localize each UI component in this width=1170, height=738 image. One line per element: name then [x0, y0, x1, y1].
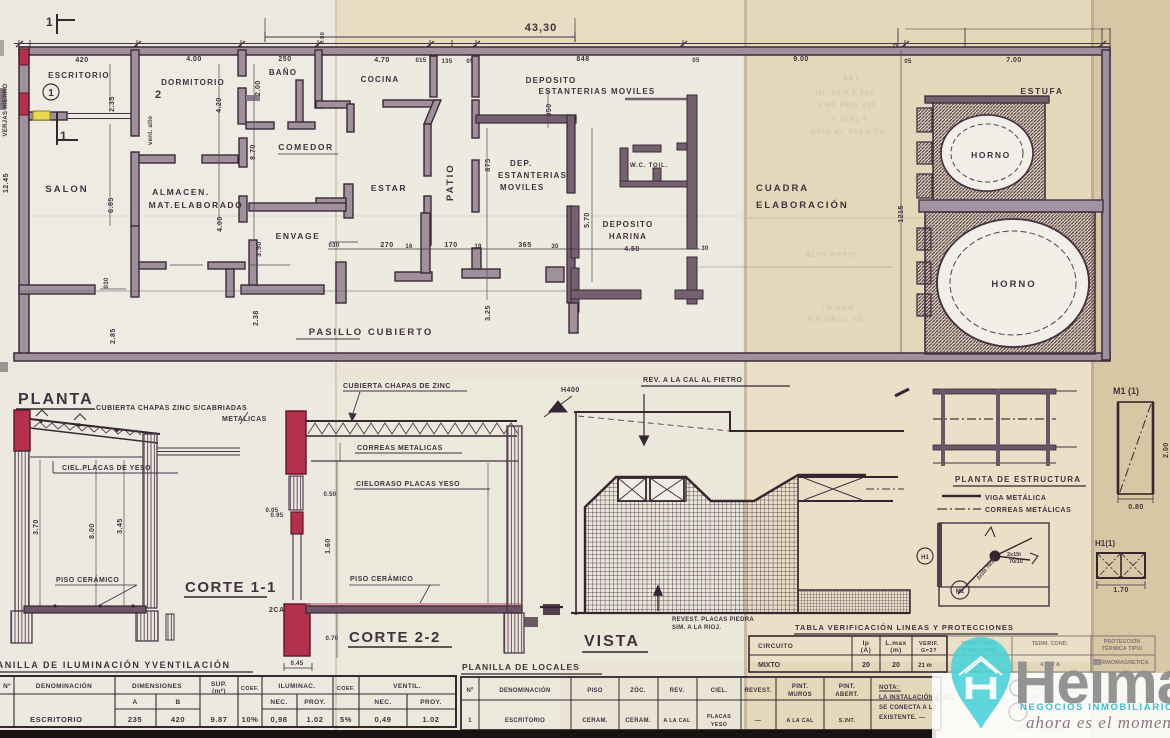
svg-text:REV. A LA CAL AL FIETRO: REV. A LA CAL AL FIETRO — [643, 377, 742, 384]
svg-text:HARINA: HARINA — [609, 232, 647, 241]
svg-text:TERM. COND.: TERM. COND. — [1032, 641, 1069, 647]
svg-text:SALON: SALON — [45, 184, 88, 195]
svg-text:CIRCUITO: CIRCUITO — [758, 643, 793, 650]
svg-text:0,49: 0,49 — [375, 715, 392, 724]
svg-text:8.00: 8.00 — [89, 523, 96, 539]
svg-text:420: 420 — [171, 715, 185, 724]
svg-text:DENOMINACIÓN: DENOMINACIÓN — [36, 681, 92, 690]
svg-text:ENVAGE: ENVAGE — [276, 231, 321, 241]
svg-text:CIELORASO PLACAS YESO: CIELORASO PLACAS YESO — [356, 481, 460, 488]
svg-text:H1(1): H1(1) — [1095, 539, 1115, 548]
svg-text:21 m: 21 m — [918, 663, 932, 669]
svg-text:LEY: LEY — [844, 75, 861, 82]
svg-text:PLACAS: PLACAS — [707, 714, 731, 720]
svg-text:TABLA VERIFICACIÓN LINEAS Y PR: TABLA VERIFICACIÓN LINEAS Y PROTECCIONES — [795, 623, 1014, 632]
svg-text:MUROS: MUROS — [788, 692, 812, 698]
svg-text:16: 16 — [405, 244, 413, 250]
svg-text:H1: H1 — [921, 555, 929, 561]
svg-text:1: 1 — [60, 129, 67, 143]
svg-text:ALTO PRTTE: ALTO PRTTE — [805, 252, 858, 259]
svg-text:170: 170 — [444, 242, 457, 249]
svg-text:1: 1 — [48, 88, 54, 99]
svg-text:ESTANTERIAS: ESTANTERIAS — [498, 171, 567, 180]
svg-text:MI. 98 T.T 388: MI. 98 T.T 388 — [816, 90, 875, 97]
svg-text:SE CONECTA A LA: SE CONECTA A LA — [879, 705, 938, 711]
svg-text:Nº: Nº — [3, 683, 11, 690]
svg-text:19: 19 — [474, 244, 482, 250]
svg-text:VIGA METÁLICA: VIGA METÁLICA — [985, 493, 1046, 502]
svg-text:ESCRITORIO: ESCRITORIO — [505, 718, 545, 724]
svg-text:SIM. A LA RIOJ.: SIM. A LA RIOJ. — [672, 625, 721, 631]
svg-text:CIEL.: CIEL. — [711, 688, 728, 694]
svg-text:VISTA: VISTA — [584, 633, 640, 650]
svg-text:BAÑO: BAÑO — [269, 68, 297, 77]
svg-text:PASILLO CUBIERTO: PASILLO CUBIERTO — [309, 327, 434, 338]
svg-text:DEPOSITO: DEPOSITO — [526, 76, 577, 85]
svg-text:TR ANM: TR ANM — [822, 305, 855, 312]
svg-text:DENOMINACIÓN: DENOMINACIÓN — [499, 686, 550, 694]
svg-text:L.max: L.max — [885, 640, 906, 647]
svg-text:9.00: 9.00 — [793, 56, 809, 63]
svg-text:420: 420 — [75, 57, 88, 64]
svg-text:1215: 1215 — [898, 205, 905, 223]
svg-text:8.70: 8.70 — [250, 144, 257, 160]
svg-text:848: 848 — [576, 56, 589, 63]
svg-text:Ip: Ip — [863, 640, 870, 647]
svg-text:PLANILLA DE ILUMINACIÓN YVENTI: PLANILLA DE ILUMINACIÓN YVENTILACIÓN — [0, 659, 231, 670]
svg-text:MOVILES: MOVILES — [500, 183, 544, 192]
svg-text:0.50: 0.50 — [324, 492, 337, 498]
svg-text:135: 135 — [442, 59, 453, 65]
svg-text:3.70: 3.70 — [33, 519, 40, 535]
svg-text:A LA CAL: A LA CAL — [786, 718, 814, 724]
svg-text:250: 250 — [278, 56, 291, 63]
svg-text:CORREAS METALICAS: CORREAS METALICAS — [357, 445, 443, 452]
svg-text:NOTA:: NOTA: — [879, 685, 899, 691]
svg-text:MAT.ELABORADO: MAT.ELABORADO — [149, 200, 244, 210]
svg-text:30: 30 — [551, 244, 559, 250]
svg-text:G=3?: G=3? — [921, 648, 937, 654]
svg-text:DORMITORIO: DORMITORIO — [161, 78, 225, 87]
svg-text:PATIO: PATIO — [445, 163, 456, 201]
svg-text:vent. alto: vent. alto — [148, 116, 154, 145]
svg-text:PLANTA DE ESTRUCTURA: PLANTA DE ESTRUCTURA — [955, 475, 1081, 484]
svg-text:REVEST.: REVEST. — [744, 688, 771, 694]
svg-text:850: 850 — [546, 103, 553, 116]
svg-text:HORNO: HORNO — [971, 150, 1011, 160]
svg-text:9.87: 9.87 — [211, 715, 228, 724]
svg-text:H400: H400 — [561, 387, 580, 394]
svg-text:6.85: 6.85 — [108, 197, 115, 213]
svg-text:0,98: 0,98 — [271, 715, 288, 724]
svg-text:ahora es el momento: ahora es el momento — [1026, 713, 1170, 732]
svg-text:7.00: 7.00 — [1006, 57, 1022, 64]
svg-text:CUBIERTA CHAPAS DE ZINC: CUBIERTA CHAPAS DE ZINC — [343, 383, 451, 390]
svg-text:W.C. TOIL.: W.C. TOIL. — [630, 163, 668, 169]
svg-text:875: 875 — [485, 158, 492, 171]
svg-text:4.70: 4.70 — [374, 57, 390, 64]
svg-text:DEPOSITO: DEPOSITO — [603, 220, 654, 229]
svg-text:CIEL.PLACAS DE YESO: CIEL.PLACAS DE YESO — [62, 465, 151, 472]
svg-text:0.80: 0.80 — [1128, 504, 1144, 511]
svg-text:UNID EL 698.6 TU: UNID EL 698.6 TU — [811, 129, 886, 136]
svg-text:NEC.: NEC. — [270, 699, 287, 706]
svg-text:(A): (A) — [861, 647, 872, 654]
svg-text:REVEST. PLACAS PIEDRA: REVEST. PLACAS PIEDRA — [672, 617, 754, 623]
svg-text:PINT.: PINT. — [839, 684, 855, 690]
svg-text:PINT.: PINT. — [792, 684, 808, 690]
svg-text:CERAM.: CERAM. — [625, 718, 650, 724]
svg-text:3.50: 3.50 — [256, 241, 263, 257]
svg-text:A: A — [132, 699, 137, 706]
svg-text:ESCRITORIO: ESCRITORIO — [48, 71, 110, 80]
svg-text:30: 30 — [701, 246, 709, 252]
svg-text:365: 365 — [518, 242, 531, 249]
svg-text:—: — — [755, 718, 761, 724]
svg-text:R.E.GRAL TN: R.E.GRAL TN — [807, 317, 863, 324]
svg-text:235: 235 — [128, 715, 142, 724]
svg-text:1.02: 1.02 — [423, 715, 440, 724]
svg-text:030: 030 — [104, 277, 110, 288]
svg-text:PISO CERÁMICO: PISO CERÁMICO — [350, 574, 413, 583]
svg-text:ESTANTERIAS MOVILES: ESTANTERIAS MOVILES — [539, 87, 656, 96]
svg-text:S.INT.: S.INT. — [839, 718, 856, 724]
svg-text:Nº: Nº — [466, 688, 474, 694]
svg-text:SUP.: SUP. — [211, 681, 227, 688]
svg-text:B: B — [175, 699, 180, 706]
svg-text:CORTE 2-2: CORTE 2-2 — [349, 629, 441, 646]
svg-text:2.00: 2.00 — [255, 80, 262, 96]
svg-text:ESTUFA: ESTUFA — [1020, 86, 1063, 96]
svg-text:4.50: 4.50 — [624, 246, 640, 253]
svg-text:ESTAR: ESTAR — [371, 183, 407, 193]
svg-text:EXISTENTE. —: EXISTENTE. — — [879, 715, 925, 721]
svg-text:M1 (1): M1 (1) — [1113, 386, 1139, 396]
svg-text:FMS 9800 438: FMS 9800 438 — [819, 102, 877, 109]
svg-text:YESO: YESO — [711, 722, 727, 728]
svg-text:COMEDOR: COMEDOR — [278, 142, 334, 152]
svg-text:PROY.: PROY. — [420, 699, 442, 706]
svg-text:1.70: 1.70 — [1113, 587, 1129, 594]
svg-text:10%: 10% — [242, 715, 259, 724]
svg-text:ELABORACIÓN: ELABORACIÓN — [756, 199, 849, 211]
svg-text:3.25: 3.25 — [485, 305, 492, 321]
svg-text:3.45: 3.45 — [117, 518, 124, 534]
svg-text:A LA CAL: A LA CAL — [663, 718, 691, 724]
svg-text:ILUMINAC.: ILUMINAC. — [278, 683, 315, 690]
svg-text:12.45: 12.45 — [3, 173, 10, 193]
svg-text:DIMENSIONES: DIMENSIONES — [132, 683, 182, 690]
svg-text:20: 20 — [862, 662, 870, 669]
svg-text:(m²): (m²) — [212, 688, 226, 695]
svg-text:ZÓC.: ZÓC. — [630, 686, 646, 694]
svg-text:CUBIERTA CHAPAS ZINC S/CABRIAD: CUBIERTA CHAPAS ZINC S/CABRIADAS — [96, 405, 247, 412]
svg-text:ALMACEN.: ALMACEN. — [152, 187, 210, 197]
svg-text:VENTIL.: VENTIL. — [393, 683, 421, 690]
svg-text:PISO: PISO — [587, 688, 603, 694]
svg-text:COEF.: COEF. — [337, 686, 355, 692]
svg-text:2: 2 — [155, 89, 161, 101]
svg-text:PROTECCIÓN: PROTECCIÓN — [1104, 637, 1141, 645]
svg-text:5%: 5% — [340, 715, 352, 724]
svg-text:5.70: 5.70 — [584, 212, 591, 228]
svg-text:PLANTA: PLANTA — [18, 391, 94, 408]
svg-text:2.85: 2.85 — [110, 328, 117, 344]
svg-text:ABERT.: ABERT. — [835, 692, 859, 698]
svg-text:PISO CERÁMICO: PISO CERÁMICO — [56, 575, 119, 584]
svg-text:0.45: 0.45 — [291, 661, 304, 667]
svg-text:4.00: 4.00 — [217, 216, 224, 232]
svg-text:2.00: 2.00 — [1163, 442, 1170, 458]
svg-text:CORTE 1-1: CORTE 1-1 — [185, 579, 277, 596]
svg-text:2.38: 2.38 — [253, 310, 260, 326]
svg-text:REV.: REV. — [670, 688, 685, 694]
svg-text:1.02: 1.02 — [307, 715, 324, 724]
svg-text:NEC.: NEC. — [374, 699, 391, 706]
svg-text:0.90: 0.90 — [320, 32, 326, 45]
svg-text:COEF.: COEF. — [241, 686, 259, 692]
svg-text:030: 030 — [329, 243, 340, 249]
svg-text:ESCRITORIO: ESCRITORIO — [30, 715, 83, 724]
svg-text:2x15t: 2x15t — [1007, 552, 1021, 558]
svg-text:PROY.: PROY. — [304, 699, 326, 706]
svg-text:20: 20 — [892, 662, 900, 669]
svg-text:70/10: 70/10 — [1009, 559, 1023, 565]
svg-text:CERAM.: CERAM. — [582, 718, 607, 724]
svg-text:05: 05 — [692, 58, 700, 64]
svg-text:2CA: 2CA — [269, 607, 285, 614]
svg-text:270: 270 — [380, 242, 393, 249]
svg-text:PLANILLA DE LOCALES: PLANILLA DE LOCALES — [462, 662, 580, 672]
svg-text:43,30: 43,30 — [525, 22, 558, 34]
svg-text:4.20: 4.20 — [216, 97, 223, 113]
svg-text:MIXTO: MIXTO — [758, 662, 781, 669]
svg-text:CORREAS METÁLICAS: CORREAS METÁLICAS — [985, 505, 1071, 514]
svg-text:05: 05 — [904, 59, 912, 65]
svg-text:015: 015 — [416, 58, 427, 64]
svg-text:NEGOCIOS INMOBILIARIO: NEGOCIOS INMOBILIARIO — [1020, 702, 1170, 713]
svg-text:0.05: 0.05 — [266, 508, 279, 514]
svg-text:4.00: 4.00 — [186, 56, 202, 63]
svg-text:HORNO: HORNO — [991, 279, 1036, 290]
svg-text:DEP.: DEP. — [510, 159, 532, 168]
svg-text:1.60: 1.60 — [325, 538, 332, 554]
svg-text:1: 1 — [46, 15, 53, 29]
svg-text:CUADRA: CUADRA — [756, 183, 809, 194]
svg-text:(m): (m) — [890, 647, 902, 654]
svg-text:COCINA: COCINA — [361, 75, 400, 84]
svg-text:1: 1 — [468, 718, 472, 724]
svg-text:VERIF.: VERIF. — [919, 641, 939, 647]
svg-text:M1: M1 — [956, 589, 965, 595]
svg-text:T 2691 T: T 2691 T — [832, 117, 868, 124]
